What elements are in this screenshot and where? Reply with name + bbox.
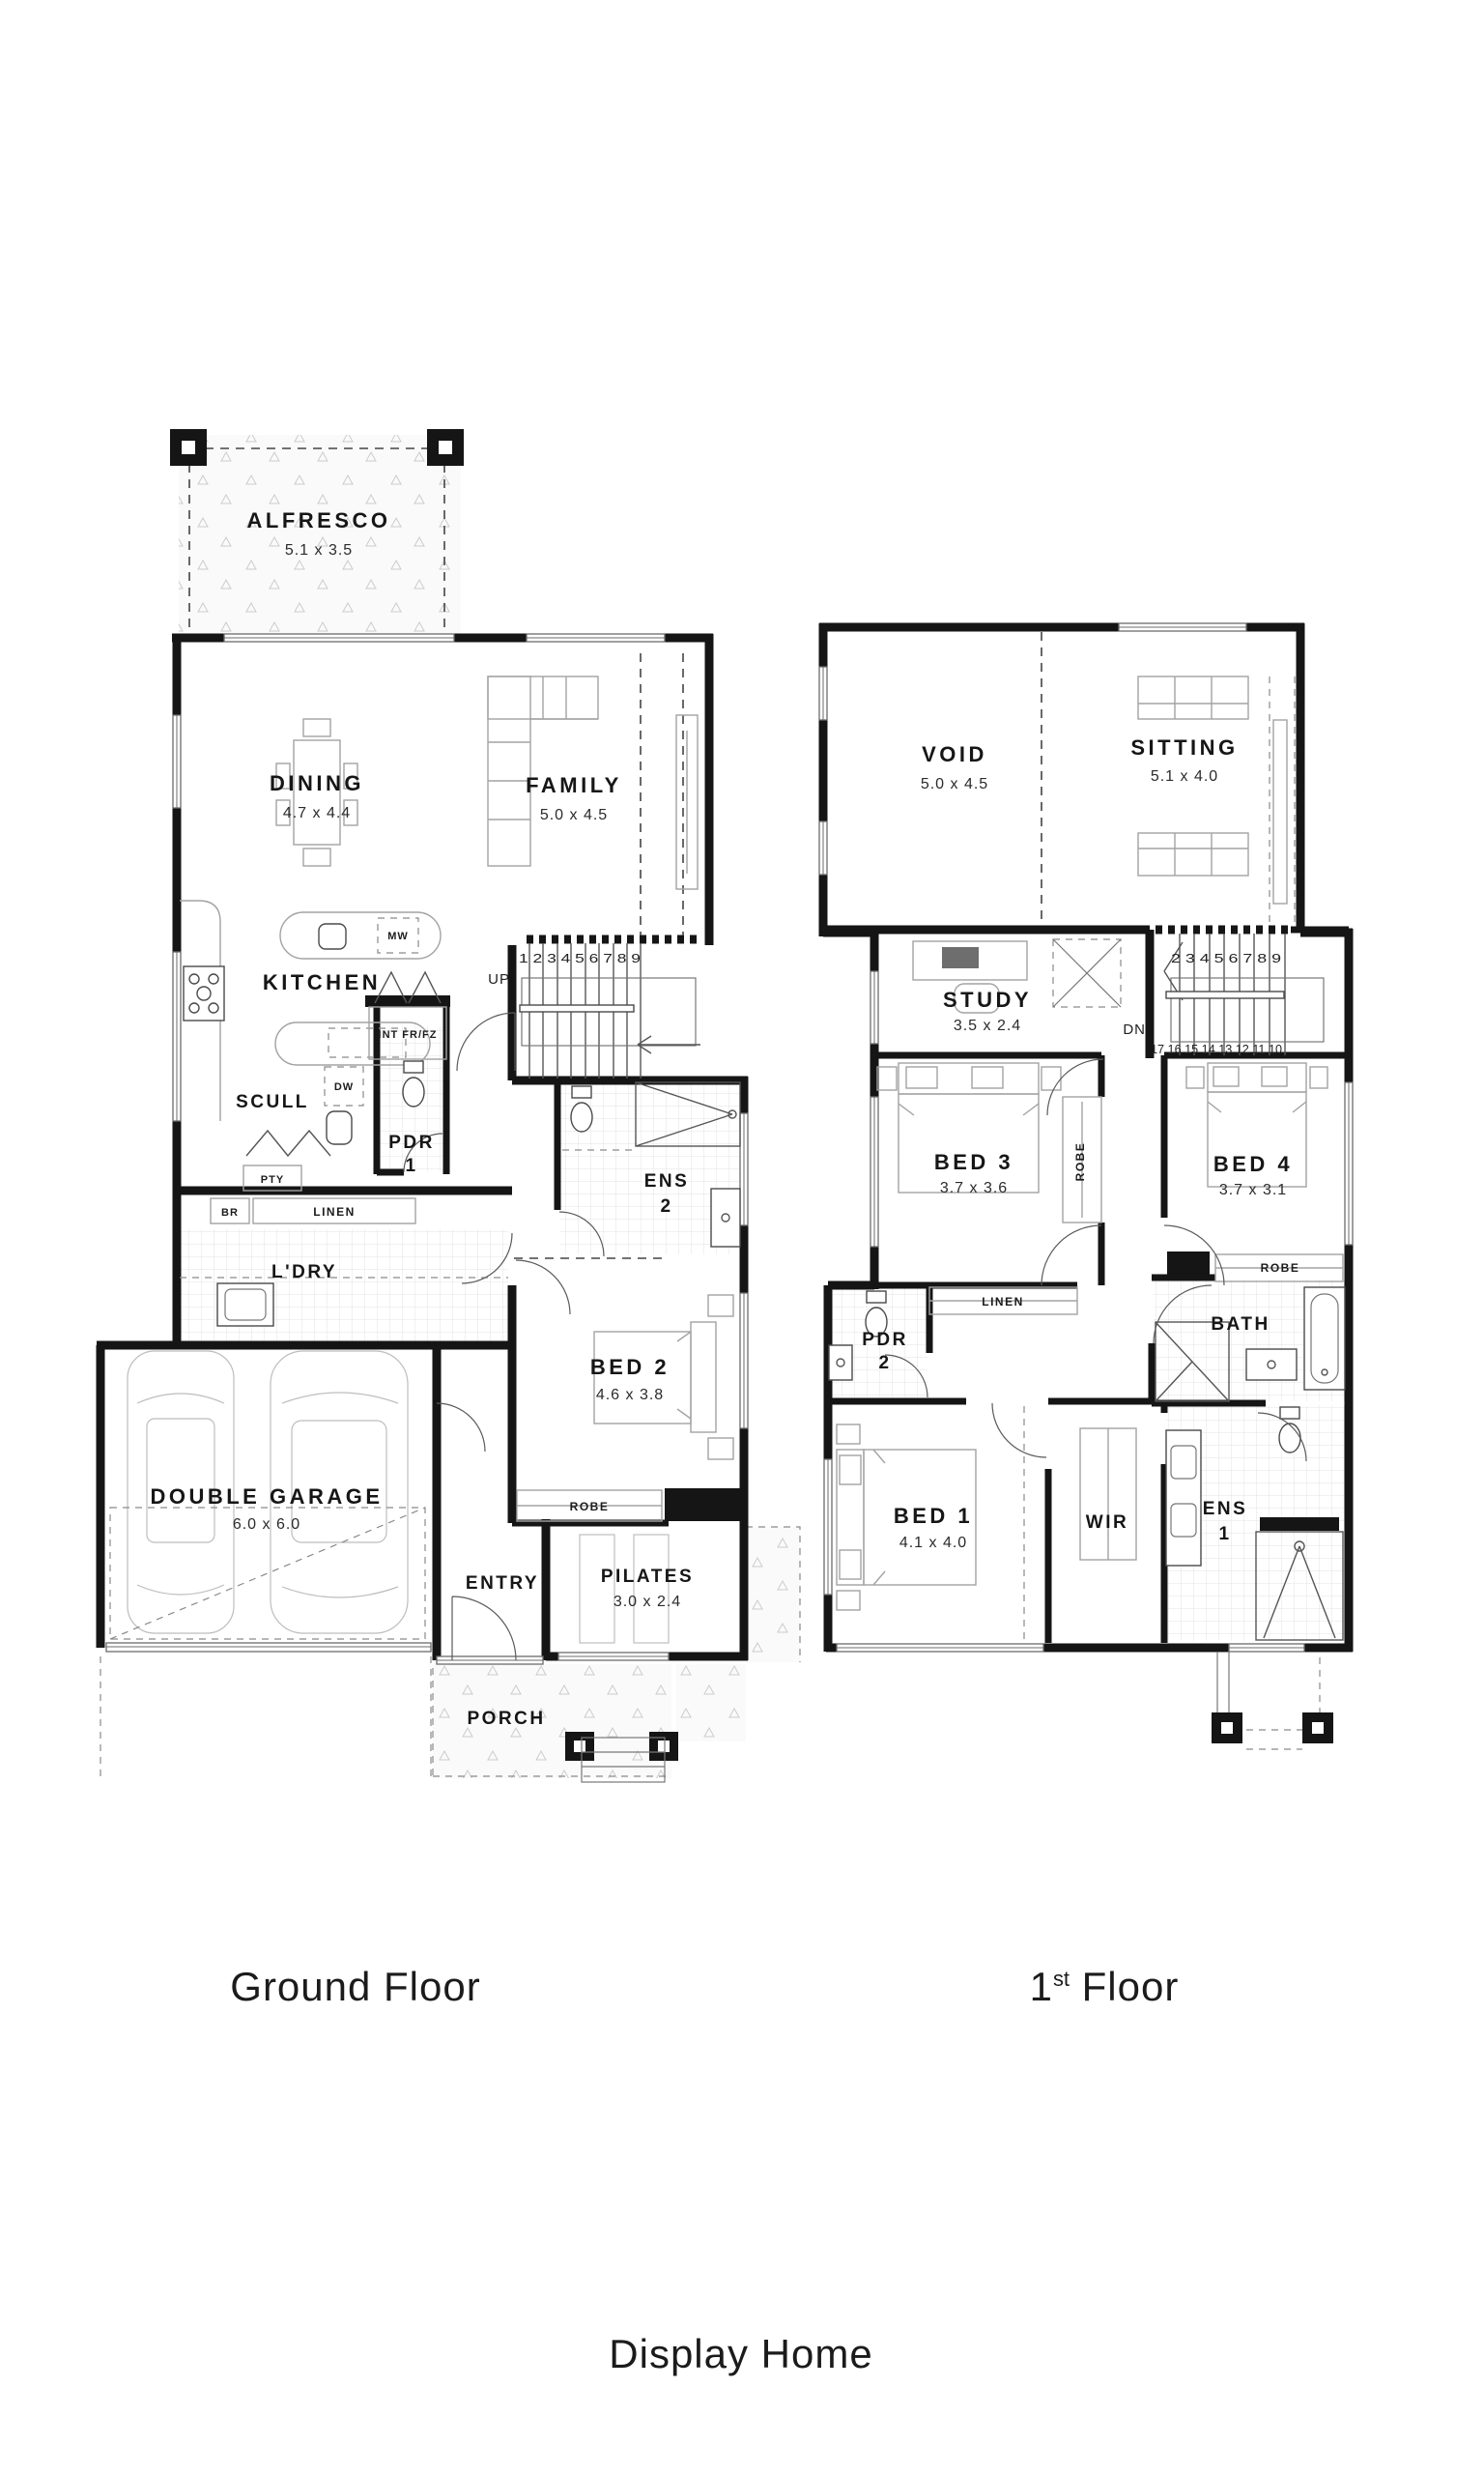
bed3-label: BED 3 [934,1150,1013,1174]
alfresco-area [170,429,464,636]
family-label: FAMILY [526,773,622,797]
dining-dims: 4.7 x 4.4 [283,805,351,821]
ground-floor-plan: 1 2 3 4 5 6 7 8 9 UP [97,429,800,1782]
pilates-dims: 3.0 x 2.4 [614,1594,681,1610]
stair-tread-numbers: 1 2 3 4 5 6 7 8 9 [519,951,641,965]
ens2-label: ENS [644,1171,690,1192]
robe-bed2-label: ROBE [570,1500,610,1513]
alfresco-label: ALFRESCO [247,508,391,532]
garage-label: DOUBLE GARAGE [150,1484,383,1509]
wir-label: WIR [1086,1512,1128,1533]
sitting-dims: 5.1 x 4.0 [1151,768,1218,785]
robe-wall-block [665,1488,746,1521]
study-label: STUDY [943,988,1032,1012]
alfresco-dims: 5.1 x 3.5 [285,542,353,559]
bed1-label: BED 1 [894,1504,973,1528]
robe-bed4-label: ROBE [1261,1261,1300,1275]
porch-label: PORCH [467,1709,545,1729]
first-floor-caption-number: 1 [1030,1964,1053,2009]
first-porch-posts [1212,1652,1333,1749]
family-sofa [488,676,598,866]
robe-bed3-label: ROBE [1073,1142,1087,1182]
bed4-label: BED 4 [1213,1152,1293,1176]
pdr2-label: PDR [862,1330,908,1350]
bed2-dims: 4.6 x 3.8 [596,1387,664,1403]
ldry-label: L'DRY [271,1262,337,1282]
ground-floor-caption: Ground Floor [230,1964,480,2010]
pty-label: PTY [261,1174,284,1186]
void-label: VOID [922,742,987,766]
first-floor-caption: 1st Floor [1030,1964,1180,2010]
entry-label: ENTRY [466,1573,539,1594]
bed3-dims: 3.7 x 3.6 [940,1180,1008,1196]
pdr2-number: 2 [878,1353,891,1373]
void-dims: 5.0 x 4.5 [921,776,988,792]
bed4-dims: 3.7 x 3.1 [1219,1182,1287,1198]
landing-shelf [1270,676,1295,926]
stair-tread-numbers-upper: 2 3 4 5 6 7 8 9 [1171,951,1281,965]
ens1-label: ENS [1203,1499,1248,1519]
family-dims: 5.0 x 4.5 [540,807,608,823]
first-floor-caption-word: Floor [1082,1964,1180,2009]
garage-dims: 6.0 x 6.0 [233,1516,300,1533]
pdr1-number: 1 [405,1156,417,1176]
staircase-up: 1 2 3 4 5 6 7 8 9 UP [488,939,700,1079]
first-floor-caption-ordinal: st [1053,1967,1070,1991]
first-floor-plan: 2 3 4 5 6 7 8 9 17 16 15 14 13 12 11 10 … [819,623,1353,1749]
int-fridge-label: INT FR/FZ [379,1029,438,1041]
pilates-equipment [580,1535,669,1643]
garage-cars [100,1351,431,1782]
kitchen-label: KITCHEN [263,970,381,994]
stair-direction-dn: DN [1123,1021,1146,1038]
stair-direction-up: UP [488,971,510,988]
corner-niche [1267,632,1292,657]
dining-label: DINING [270,771,364,795]
bed2-label: BED 2 [590,1355,670,1379]
display-home-caption: Display Home [609,2331,872,2377]
floor-plans-drawing: 1 2 3 4 5 6 7 8 9 UP [0,0,1484,2474]
linen-label: LINEN [313,1205,356,1219]
sitting-label: SITTING [1130,735,1238,760]
tv-unit [676,715,698,889]
pdr1-label: PDR [388,1133,435,1153]
staircase-down: 2 3 4 5 6 7 8 9 17 16 15 14 13 12 11 10 … [1123,930,1349,1056]
ens1-number: 1 [1218,1524,1231,1544]
scull-label: SCULL [236,1092,309,1112]
study-dims: 3.5 x 2.4 [954,1018,1021,1034]
ens2-number: 2 [660,1196,672,1217]
wir-shelving [1080,1428,1136,1560]
bed1-dims: 4.1 x 4.0 [899,1535,967,1551]
floor-plan-page: 1 2 3 4 5 6 7 8 9 UP [0,0,1484,2474]
linen-first-label: LINEN [982,1295,1024,1309]
stair-tread-numbers-lower: 17 16 15 14 13 12 11 10 [1151,1042,1282,1056]
bath-robe-wall [1167,1251,1210,1280]
bath-label: BATH [1211,1314,1270,1335]
mw-label: MW [387,931,409,942]
dw-label: DW [334,1081,354,1093]
pilates-label: PILATES [601,1567,694,1587]
br-label: BR [221,1207,239,1219]
